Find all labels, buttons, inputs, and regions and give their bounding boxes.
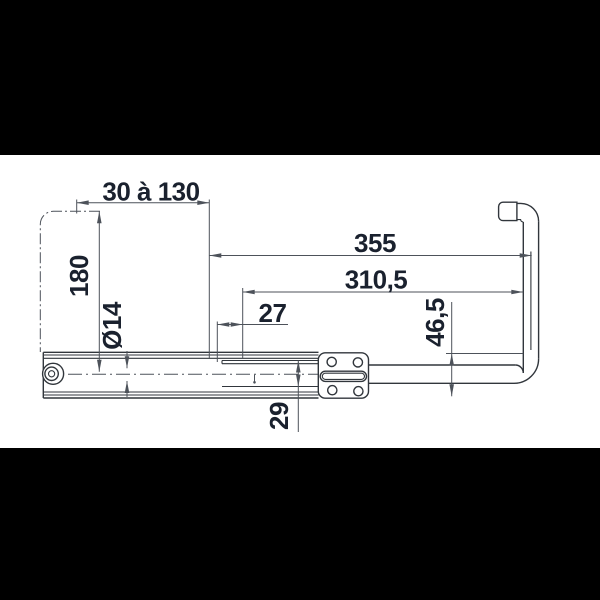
end-mounting-plate bbox=[318, 353, 368, 398]
paper-band bbox=[0, 155, 600, 448]
dim-label-diameter-14: Ø14 bbox=[97, 301, 127, 350]
dim-label-extension-range: 30 à 130 bbox=[102, 177, 199, 207]
dim-label-29: 29 bbox=[264, 402, 294, 430]
drawing-canvas: 30 à 130 355 310,5 27 180 Ø14 46,5 29 bbox=[0, 0, 600, 600]
front-mount-tab bbox=[43, 363, 64, 384]
dim-label-355: 355 bbox=[354, 228, 396, 258]
dim-label-46-5: 46,5 bbox=[420, 298, 450, 347]
dim-label-180: 180 bbox=[64, 255, 94, 297]
technical-drawing: 30 à 130 355 310,5 27 180 Ø14 46,5 29 bbox=[0, 0, 600, 600]
dim-label-27: 27 bbox=[259, 298, 287, 328]
dim-label-310-5: 310,5 bbox=[345, 265, 408, 295]
center-tick-dot bbox=[253, 381, 256, 384]
tube-end-cap bbox=[499, 202, 517, 220]
